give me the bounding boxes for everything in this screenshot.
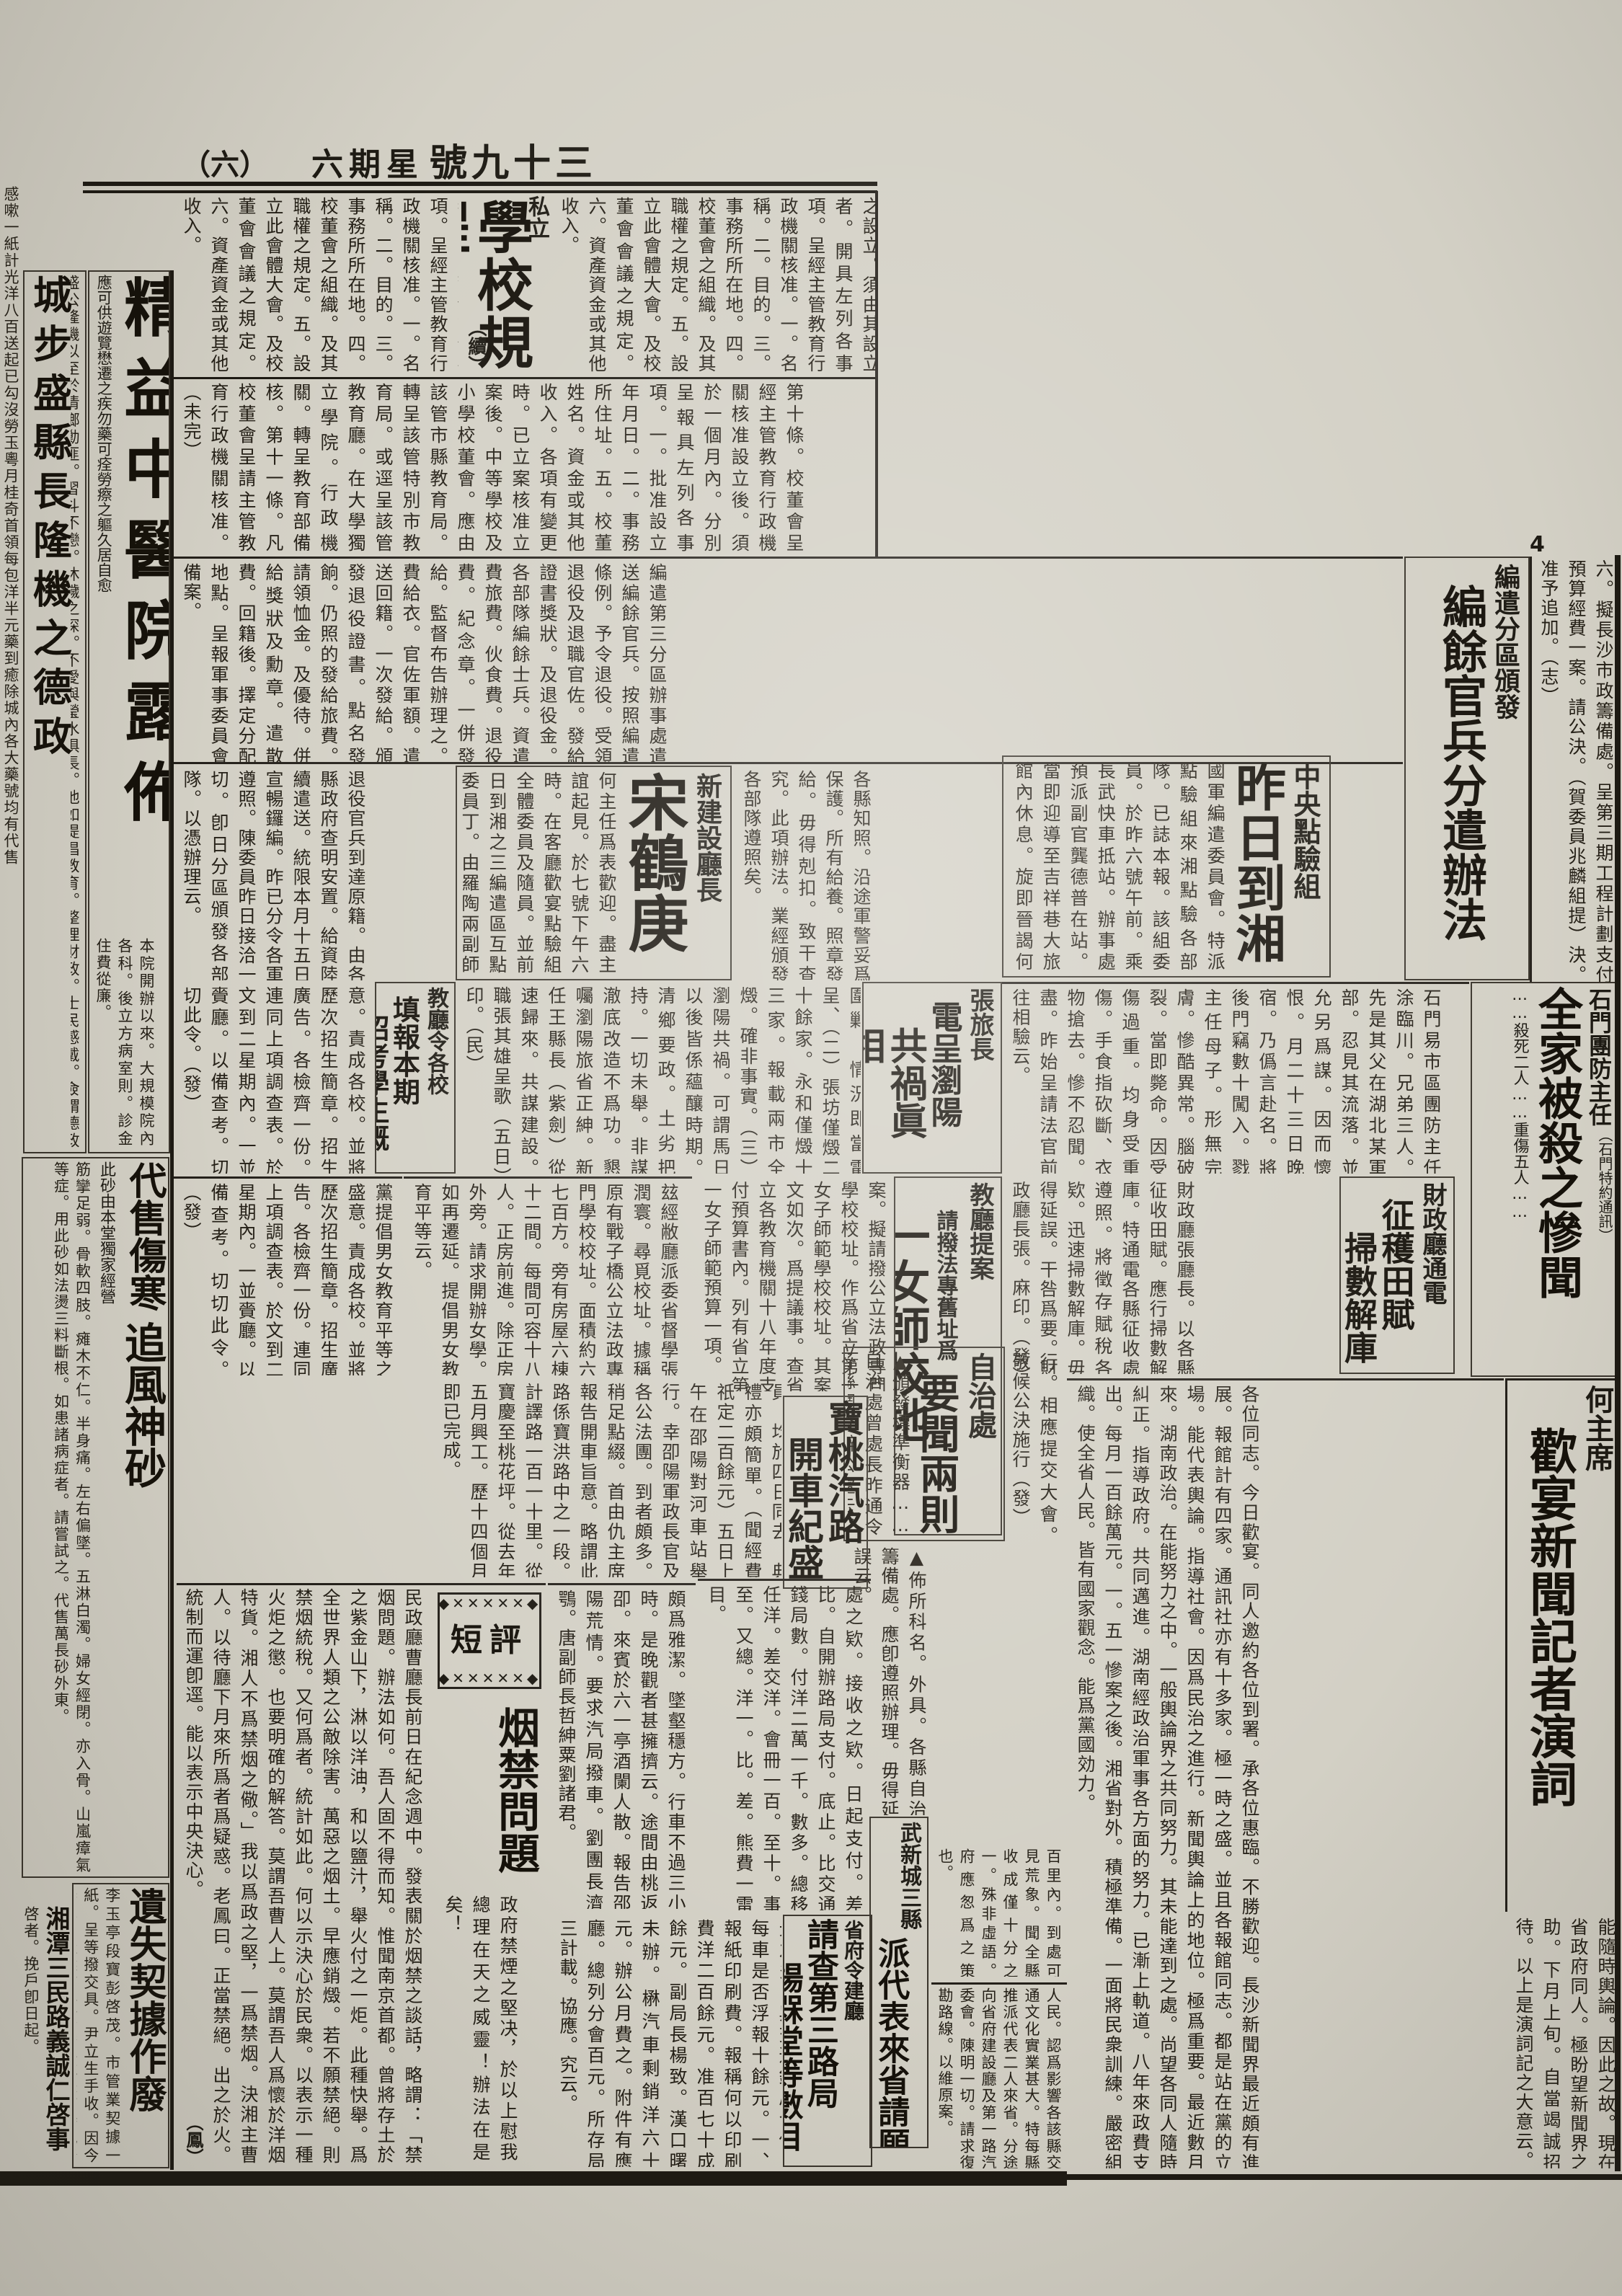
article-proposal-body2: 此女師校址有着。該院亦無妨碍。是否可行。相應提交大會。敬候公決施行（發） xyxy=(1003,1349,1067,1543)
edge-strip: 感嗽一紙計光洋八百送起已勾沒勞玉粵月桂奇首領每包洋半元藥到癒除城內各大藥號均有代… xyxy=(0,186,22,2168)
zhang-title-1: 電呈瀏陽 xyxy=(926,1001,961,1169)
shimen-title: 全家被殺之慘聞 xyxy=(1532,986,1582,1373)
shimen-note: （石門特約通訊） xyxy=(1582,1127,1616,1243)
chengbu-body: 盛公隆機以至於清鄉勦匪。習斗不戀。沐穢之深。不愛與瑩水俱長。他如提倡教育。整理財… xyxy=(71,275,82,1149)
wuxincheng-headline-block: 武新城三縣 派代表來省請願 xyxy=(869,1817,929,2148)
edge-strip-text: 感嗽一紙計光洋八百送起已勾沒勞玉粵月桂奇首領每包洋半元藥到癒除城內各大藥號均有代… xyxy=(0,186,22,2168)
baotao-body: 寶桃汽車路。定於五日行開車禮。該局先期帖請各機關領袖。赴寶參與盛典。乃四日赴寶者… xyxy=(433,1378,781,1577)
zhang-title-2: 共禍眞相 xyxy=(862,1027,926,1169)
folio-mark: 4 xyxy=(1530,532,1545,557)
newspaper-page: （六） 六期星 號九十三 4 感嗽一紙計光洋八百送起已勾沒勞玉粵月桂奇首領每包洋… xyxy=(0,0,1622,2296)
proposal-body2: 此女師校址有着。該院亦無妨碍。是否可行。相應提交大會。敬候公決施行（發） xyxy=(1003,1349,1067,1543)
shimen-kicker: 石門團防主任 xyxy=(1582,986,1616,1127)
article-duanping: ◆✕✕✕✕✕◆ 短評 ◆✕✕✕✕✕◆ 烟禁問題 民政廳曹廳長前日在紀念週中。發表… xyxy=(177,1583,546,2170)
demob-continuation-mid: 各縣知照。沿途軍警妥爲保護。所有給養。照章發給。毋得剋扣。致干查究。此項辦法。業… xyxy=(733,766,1001,980)
lost-deed-title: 遺失契據作廢 xyxy=(123,1887,165,2164)
order-body2: 玆經敝廳派委省督學張潤寰。尋覓校址。據稱原有戰子橋公立法政專門學校校址。面積約六… xyxy=(404,1179,686,1375)
wuxincheng-title: 派代表來省請願 xyxy=(873,1937,908,2148)
ad-medicine: 代售傷寒 追風神砂 此砂由本堂獨家經營 筋攣足弱。骨軟四肢。瘫木不仁。半身痛。左… xyxy=(22,1157,169,1878)
duanping-body: 民政廳曹廳長前日在紀念週中。發表關於烟禁之談話，略謂：「禁烟問題。辦法如何。吾人… xyxy=(180,1588,426,2165)
demob-cont-left-text: 退役官兵到達原籍。由各縣政府查明安置。給資陸續遣送。統限本月十五日宣暢鑼編。昨已… xyxy=(173,766,373,980)
order-body3: 查各校招考學生。近因各中學畢業者日多。中央規定中等學校准男女同校。致使女生無處升… xyxy=(173,1179,402,1375)
shengfu-headline-block: 省府令建廳 請查第三路局 楊槑堂等數目 xyxy=(783,1915,872,2167)
baotao-body3: 雖參加開車盛典。自界爲邵陽勘荒。桃花坪數百里內。到處可見荒象。聞全縣收成僅十分之… xyxy=(931,1845,1067,1977)
baotao-body2: 沿途所經。許多小橋。均青石砌成。頗爲雅潔。墜壑穩方。行車不過三小時。是晚觀者甚擁… xyxy=(548,1585,696,1909)
article-order-body: 查各校招考學生。近因各中學畢業者日多。中央規定中等學校准男女同校。致使女生無處升… xyxy=(173,982,373,1174)
article-council-minutes: 照准。五。擬請委任譚瑛宋實秋爲祕書。陳容爲總設廳第一科科長。可否請公決。（志）照… xyxy=(1530,557,1618,982)
article-baotao-body: 寶桃汽車路。定於五日行開車禮。該局先期帖請各機關領袖。赴寶參與盛典。乃四日赴寶者… xyxy=(433,1378,781,1577)
he-speech-kicker: 何主席 xyxy=(1576,1383,1618,1909)
finance-body: 財政廳張廳長。以各縣征收田賦。應行掃數解庫。特通電各縣征收處遵照。將徵存賦稅各欵… xyxy=(1002,1176,1202,1374)
order-kicker: 教廳令各校 xyxy=(420,985,453,1170)
order-body: 查各校招考學生。近因各中學畢業者日多。中央規定中等學校准男女同校。致使女生無處升… xyxy=(173,982,373,1174)
wuxincheng-kicker: 武新城三縣 xyxy=(892,1820,926,1931)
jingyi-side-note: 應可供遊覽懋遷之疾勿藥可痊勞瘵之軀久居自愈 xyxy=(92,275,115,932)
regulations-cont-mark: （續） xyxy=(463,318,489,374)
shengfu-kicker: 省府令建廳 xyxy=(838,1918,869,2163)
demob-continuation-left: 退役官兵到達原籍。由各縣政府查明安置。給資陸續遣送。統限本月十五日宣暢鑼編。昨已… xyxy=(173,766,454,980)
finance-headline-block: 財政廳通電 征穫田賦 掃數解庫 xyxy=(1339,1176,1455,1374)
audit-body: 理。交通錢局存數比較。十餘元欵。處之欵。接收之欵。日起支付。差比。自開辦路局支付… xyxy=(698,1581,871,1910)
order-title-1: 填報本期 xyxy=(389,996,420,1170)
song-kicker: 新建設廳長 xyxy=(688,771,726,975)
article-he-speech-body: 各位同志。今日歡宴。同人邀約各位到署。承各位惠臨。不勝歡迎。長沙新聞界最近頗有進… xyxy=(1067,1378,1504,2168)
shimen-body: 石門易市區團防主任涂臨川。兄弟三人。先是其父在湖北某軍部。忍見其流落。並允另爲謀… xyxy=(1002,984,1449,1174)
demob-kicker: 編遣分區頒發 xyxy=(1486,562,1524,975)
medicine-ad-note: 此砂由本堂獨家經營 xyxy=(93,1161,118,1874)
article-order-body2: 玆經敝廳派委省督學張潤寰。尋覓校址。據稱原有戰子橋公立法政專門學校校址。面積約六… xyxy=(404,1176,692,1375)
article-shimen-body: 石門易市區團防主任涂臨川。兄弟三人。先是其父在湖北某軍部。忍見其流落。並允另爲謀… xyxy=(1002,982,1469,1174)
he-speech-title: 歡宴新聞記者演詞 xyxy=(1523,1427,1576,1909)
chengbu-headline: 城步盛縣長隆機之德政 xyxy=(27,275,71,1149)
page-number: （六） xyxy=(182,141,268,183)
duanping-signature: （鳳） xyxy=(181,2114,206,2166)
yanjin-headline: 烟禁問題 xyxy=(492,1706,539,1874)
inspection-body: 國軍編遣委員會。特派點驗組來湘點驗各部隊。已誌本報。該組委員。於昨六號午前。乘長… xyxy=(1008,761,1228,972)
shimen-headline-block: 石門團防主任 （石門特約通訊） 全家被殺之慘聞 ……殺死二人……重傷五人…… xyxy=(1471,982,1621,1377)
xiangtan-body: 啓者。挽戶卽日起。 xyxy=(22,1906,42,2167)
article-inspection-team: 中央點驗組 昨日到湘 國軍編遣委員會。特派點驗組來湘點驗各部隊。已誌本報。該組委… xyxy=(1002,755,1331,978)
jingyi-headline: 精益中醫院露佈 xyxy=(115,275,170,932)
shengfu-body: 省府以第三路局楊槑堂等經手欵目。不無浮濫。特令建設廳嚴查具復。計開。一、七年元月… xyxy=(549,1915,781,2167)
baotao-headline-block: 寶桃汽路 開車紀盛 xyxy=(783,1396,868,1589)
wuxincheng-body: 桃樹坪王靜潭領一段。即繼續興修。以符第四屆路務代表會原案。乃路線忽有變更。不經龍… xyxy=(931,1985,1067,2168)
inspection-kicker: 中央點驗組 xyxy=(1285,761,1326,972)
zhang-body: △張坊永和兩市未全燬△土劣把持清鄉要政△團長圍剿丙尖嶺匪巢。張旅長其雄。昨由瀏陽… xyxy=(456,982,861,1174)
medicine-ad-body: 筋攣足弱。骨軟四肢。瘫木不仁。半身痛。左右偏墜。五淋白濁。婦女經閉。亦入骨。山嵐… xyxy=(26,1161,93,1874)
he-speech-headline-block: 何主席 歡宴新聞記者演詞 xyxy=(1505,1378,1621,1912)
finance-kicker: 財政廳通電 xyxy=(1414,1181,1451,1370)
lost-deed-body: 李玉亭段寶彭啓茂。市管業契據一紙。呈等撥交具。尹立生手收。因今春二月擬選。將該契… xyxy=(76,1887,123,2164)
article-school-regulations: 第六條。私立學校辦理不善。或違背法令時。主管教育行政機關。得撤銷其立案或解散之。… xyxy=(173,191,878,557)
finance-title-2: 掃數解庫 xyxy=(1339,1231,1377,1370)
order-title-2: 招考學生概况 xyxy=(375,1014,389,1170)
inspection-title: 昨日到湘 xyxy=(1228,761,1285,972)
council-body: 照准。五。擬請委任譚瑛宋實秋爲祕書。陳容爲總設廳第一科科長。可否請公決。（志）照… xyxy=(1532,557,1618,982)
bottom-bar-thin xyxy=(1067,2174,1622,2180)
duanping-closing: 政府禁煙之堅决，於以上慰我總理在天之威靈！辦法在是矣！ xyxy=(439,1895,521,2162)
right-edge-bar xyxy=(1615,555,1621,2171)
article-baotao-body3: 雖參加開車盛典。自界爲邵陽勘荒。桃花坪數百里內。到處可見荒象。聞全縣收成僅十分之… xyxy=(931,1845,1067,1977)
jingyi-body: 本院開辦以來。大規模院內各科。後立方病室則。診金住費從廉。 xyxy=(89,935,160,1150)
left-divider-bar xyxy=(170,270,174,2170)
medicine-ad-title-main: 追風神砂 xyxy=(118,1321,165,1489)
order-headline-block: 教廳令各校 填報本期 招考學生概况 xyxy=(375,982,456,1174)
demob-cont-mid-text: 各縣知照。沿途軍警妥爲保護。所有給養。照章發給。毋得剋扣。致干查究。此項辦法。業… xyxy=(733,766,879,980)
he-speech-body2: 能隨時輿論。因此之故。現在省政府同人。極盼望新聞界之助。下月上旬。自當竭誠招待。… xyxy=(1505,1913,1621,2168)
xiangtan-title: 湘潭三民路義誠仁啓事 xyxy=(42,1906,69,2167)
article-finance-body: 財政廳張廳長。以各縣征收田賦。應行掃數解庫。特通電各縣征收處遵照。將徵存賦稅各欵… xyxy=(1002,1176,1338,1374)
masthead-weekday: 六期星 xyxy=(311,138,424,185)
shengfu-title-1: 請查第三路局 xyxy=(802,1918,838,2163)
duanping-ornament-box: ◆✕✕✕✕✕◆ 短評 ◆✕✕✕✕✕◆ xyxy=(438,1592,541,1689)
demob-headline-block: 編遣分區頒發 編餘官兵分遣辦法 xyxy=(1404,557,1530,980)
regulations-divider xyxy=(173,377,875,379)
ornament-bottom-icon: ◆✕✕✕✕✕◆ xyxy=(438,1670,541,1687)
ad-lost-deed: 遺失契據作廢 李玉亭段寶彭啓茂。市管業契據一紙。呈等撥交具。尹立生手收。因今春二… xyxy=(72,1883,169,2168)
regulations-headline-block: 私立 學校規程 （續） xyxy=(461,195,554,376)
shimen-subtitle: ……殺死二人……重傷五人…… xyxy=(1507,986,1532,1373)
article-chengbu-magistrate: 城步盛縣長隆機之德政 盛公隆機以至於清鄉勦匪。習斗不戀。沐穢之深。不愛與瑩水俱長… xyxy=(23,270,87,1153)
masthead-issue-number: 號九十三 xyxy=(430,133,597,187)
baotao-title-1: 寶桃汽路 xyxy=(823,1400,864,1584)
song-body: 何主任爲表歡迎。盡主誼起見。於七號下午六時。在客廳歡宴點驗組全體委員及隨員。並前… xyxy=(461,771,620,975)
shengfu-title-2: 楊槑堂等數目 xyxy=(783,1962,802,2163)
article-audit-figures: 理。交通錢局存數比較。十餘元欵。處之欵。接收之欵。日起支付。差比。自開辦路局支付… xyxy=(698,1579,871,1910)
regulations-body-upper-right: 第六條。私立學校辦理不善。或違背法令時。主管教育行政機關。得撤銷其立案或解散之。… xyxy=(555,197,876,373)
finance-title-1: 征穫田賦 xyxy=(1377,1198,1414,1370)
song-title: 宋鶴庚 xyxy=(620,771,688,975)
ad-jingyi-hospital: 應可供遊覽懋遷之疾勿藥可痊勞瘵之軀久居自愈 精益中醫院露佈 本院開辦以來。大規模… xyxy=(88,270,170,1153)
article-baotao-body2: 沿途所經。許多小橋。均青石砌成。頗爲雅潔。墜壑穩方。行車不過三小時。是晚觀者甚擁… xyxy=(548,1583,696,1909)
regulations-body-lower: 第十條。校董會呈經主管教育行政機關核准設立後。須於一個月內。分別呈報具左列各事項… xyxy=(177,383,807,553)
article-shengfu-body: 省府以第三路局楊槑堂等經手欵目。不無浮濫。特令建設廳嚴查具復。計開。一、七年元月… xyxy=(549,1915,781,2167)
zizhichu-kicker: 自治處 xyxy=(959,1351,1001,1537)
demob-body: 編遣第三分區辦事處遣送編餘官兵。按照編遣條例。予令退役。受領退役及退職官佐。發給… xyxy=(173,559,675,764)
ad-xiangtan-notice: 湘潭三民路義誠仁啓事 啓者。挽戶卽日起。 xyxy=(20,1905,71,2168)
bottom-bar-heavy xyxy=(0,2171,1067,2186)
regulations-body-upper-left: 第六條。私立學校辦理不善。或違背法令時。主管教育行政機關。得撤銷其立案或解散之。… xyxy=(177,197,458,373)
zizhichu-title: 要聞兩則 xyxy=(913,1373,959,1537)
demob-title: 編餘官兵分遣辦法 xyxy=(1436,584,1486,975)
zhang-headline-block: 張旅長 電呈瀏陽 共禍眞相 xyxy=(862,982,1002,1174)
article-order-body3: 查各校招考學生。近因各中學畢業者日多。中央規定中等學校准男女同校。致使女生無處升… xyxy=(173,1176,402,1375)
zhang-kicker: 張旅長 xyxy=(962,986,998,1169)
article-new-commissioner: 新建設廳長 宋鶴庚 何主任爲表歡迎。盡主誼起見。於七號下午六時。在客廳歡宴點驗組… xyxy=(456,766,732,980)
duanping-label: 短評 xyxy=(451,1612,528,1670)
baotao-title-2: 開車紀盛 xyxy=(783,1436,823,1584)
ornament-top-icon: ◆✕✕✕✕✕◆ xyxy=(438,1595,541,1612)
article-he-speech-body2: 能隨時輿論。因此之故。現在省政府同人。極盼望新聞界之助。下月上旬。自當竭誠招待。… xyxy=(1505,1913,1621,2168)
article-zhang-body: △張坊永和兩市未全燬△土劣把持清鄉要政△團長圍剿丙尖嶺匪巢。張旅長其雄。昨由瀏陽… xyxy=(456,982,861,1174)
medicine-ad-title-top: 代售傷寒 xyxy=(118,1161,165,1311)
he-speech-body: 各位同志。今日歡宴。同人邀約各位到署。承各位惠臨。不勝歡迎。長沙新聞界最近頗有進… xyxy=(1067,1380,1267,2168)
article-wuxincheng-body: 桃樹坪王靜潭領一段。即繼續興修。以符第四屆路務代表會原案。乃路線忽有變更。不經龍… xyxy=(931,1982,1067,2168)
article-demob-body: 編遣第三分區辦事處遣送編餘官兵。按照編遣條例。予令退役。受領退役及退職官佐。發給… xyxy=(173,557,1403,764)
